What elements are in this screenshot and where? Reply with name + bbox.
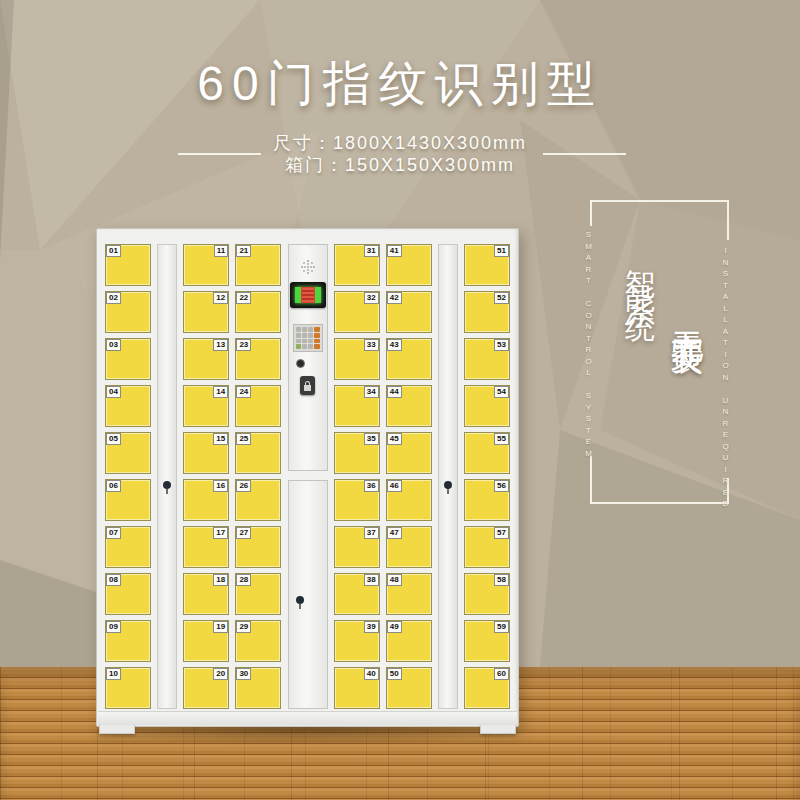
product-banner: 60门指纹识别型 尺寸：1800X1430X300mm 箱门：150X150X3… — [0, 0, 800, 800]
door-number: 17 — [214, 528, 227, 538]
locker-door: 59 — [464, 620, 510, 662]
locker-door: 14 — [183, 385, 229, 427]
side-caption-cn-primary: 智能系统 — [619, 245, 660, 301]
door-number: 14 — [214, 387, 227, 397]
keypad-key — [308, 333, 313, 338]
keyhole-icon — [296, 596, 304, 604]
product-title: 60门指纹识别型 — [0, 52, 800, 116]
locker-door: 44 — [386, 385, 432, 427]
door-number: 37 — [365, 528, 378, 538]
frame-line-left-upper — [590, 200, 592, 226]
locker-door: 01 — [105, 244, 151, 286]
keyhole-icon — [163, 481, 171, 489]
door-number: 33 — [365, 340, 378, 350]
door-number: 50 — [388, 669, 401, 679]
door-number: 21 — [237, 246, 250, 256]
locker-door: 57 — [464, 526, 510, 568]
locker-door: 43 — [386, 338, 432, 380]
locker-door: 06 — [105, 479, 151, 521]
door-number: 43 — [388, 340, 401, 350]
frame-line-left-lower — [590, 456, 592, 504]
lock-handle-icon — [300, 376, 315, 395]
control-column — [288, 244, 328, 709]
locker-door: 09 — [105, 620, 151, 662]
door-number: 18 — [214, 575, 227, 585]
keyhole-icon — [444, 481, 452, 489]
locker-door: 03 — [105, 338, 151, 380]
door-number: 13 — [214, 340, 227, 350]
locker-door: 51 — [464, 244, 510, 286]
door-number: 27 — [237, 528, 250, 538]
door-number: 06 — [107, 481, 120, 491]
locker-columns: 01020304050607080910 1112131415161718192… — [105, 244, 510, 709]
frame-line-top — [590, 200, 729, 202]
door-number: 55 — [495, 434, 508, 444]
door-number: 44 — [388, 387, 401, 397]
spec-block: 尺寸：1800X1430X300mm 箱门：150X150X300mm — [0, 132, 800, 176]
cabinet-foot-left — [99, 725, 135, 734]
door-number: 40 — [365, 669, 378, 679]
locker-door: 08 — [105, 573, 151, 615]
door-number: 07 — [107, 528, 120, 538]
spec-divider-right — [543, 153, 626, 155]
locker-door: 26 — [235, 479, 281, 521]
locker-door: 13 — [183, 338, 229, 380]
door-column-4: 31323334353637383940 — [334, 244, 380, 709]
keypad-key — [314, 327, 319, 332]
locker-door: 16 — [183, 479, 229, 521]
frame-line-right-upper — [727, 200, 729, 240]
keypad-key — [302, 344, 307, 349]
door-number: 56 — [495, 481, 508, 491]
door-number: 25 — [237, 434, 250, 444]
locker-door: 55 — [464, 432, 510, 474]
locker-door: 02 — [105, 291, 151, 333]
door-number: 10 — [107, 669, 120, 679]
door-number: 32 — [365, 293, 378, 303]
keypad — [293, 324, 323, 352]
door-number: 49 — [388, 622, 401, 632]
keypad-key — [308, 339, 313, 344]
door-number: 02 — [107, 293, 120, 303]
locker-door: 40 — [334, 667, 380, 709]
locker-door: 18 — [183, 573, 229, 615]
locker-door: 12 — [183, 291, 229, 333]
locker-door: 17 — [183, 526, 229, 568]
locker-door: 23 — [235, 338, 281, 380]
side-caption-en-left: SMART CONTROL SYSTEM — [584, 230, 593, 460]
keypad-key — [302, 327, 307, 332]
locker-door: 60 — [464, 667, 510, 709]
locker-door: 54 — [464, 385, 510, 427]
door-number: 03 — [107, 340, 120, 350]
locker-door: 04 — [105, 385, 151, 427]
door-number: 15 — [214, 434, 227, 444]
door-number: 29 — [237, 622, 250, 632]
keypad-key — [314, 333, 319, 338]
door-number: 35 — [365, 434, 378, 444]
locker-door: 07 — [105, 526, 151, 568]
locker-door: 45 — [386, 432, 432, 474]
door-column-1: 01020304050607080910 — [105, 244, 151, 709]
keypad-key — [296, 327, 301, 332]
door-number: 04 — [107, 387, 120, 397]
locker-door: 39 — [334, 620, 380, 662]
side-lock-panel-right — [438, 244, 458, 709]
locker-door: 05 — [105, 432, 151, 474]
door-number: 53 — [495, 340, 508, 350]
door-number: 57 — [495, 528, 508, 538]
door-number: 42 — [388, 293, 401, 303]
door-number: 22 — [237, 293, 250, 303]
keypad-key — [296, 339, 301, 344]
locker-door: 56 — [464, 479, 510, 521]
locker-door: 36 — [334, 479, 380, 521]
door-number: 45 — [388, 434, 401, 444]
keypad-key — [314, 344, 319, 349]
smart-locker-cabinet: 01020304050607080910 1112131415161718192… — [96, 228, 519, 727]
cabinet-base — [98, 711, 517, 725]
spec-door-size: 箱门：150X150X300mm — [0, 154, 800, 176]
door-number: 19 — [214, 622, 227, 632]
door-number: 12 — [214, 293, 227, 303]
locker-door: 10 — [105, 667, 151, 709]
door-column-5: 41424344454647484950 — [386, 244, 432, 709]
locker-door: 11 — [183, 244, 229, 286]
locker-door: 53 — [464, 338, 510, 380]
locker-door: 27 — [235, 526, 281, 568]
door-number: 16 — [214, 481, 227, 491]
door-number: 39 — [365, 622, 378, 632]
door-number: 08 — [107, 575, 120, 585]
padlock-glyph — [304, 385, 311, 391]
side-lock-panel-left — [157, 244, 177, 709]
central-service-door — [288, 480, 328, 709]
door-number: 36 — [365, 481, 378, 491]
locker-door: 22 — [235, 291, 281, 333]
door-number: 30 — [237, 669, 250, 679]
locker-door: 33 — [334, 338, 380, 380]
side-caption-en-right: INSTALLATION UNREQUIRED — [721, 246, 730, 511]
locker-door: 31 — [334, 244, 380, 286]
locker-door: 28 — [235, 573, 281, 615]
locker-door: 38 — [334, 573, 380, 615]
fingerprint-graphic — [302, 288, 314, 302]
keypad-key — [308, 344, 313, 349]
door-number: 20 — [214, 669, 227, 679]
door-number: 09 — [107, 622, 120, 632]
locker-door: 21 — [235, 244, 281, 286]
locker-door: 46 — [386, 479, 432, 521]
door-number: 31 — [365, 246, 378, 256]
keypad-key — [296, 344, 301, 349]
door-column-3: 21222324252627282930 — [235, 244, 281, 709]
screen-glass — [295, 287, 321, 303]
locker-door: 52 — [464, 291, 510, 333]
speaker-icon — [307, 266, 309, 268]
keypad-key — [302, 333, 307, 338]
keypad-key — [314, 339, 319, 344]
door-number: 05 — [107, 434, 120, 444]
door-number: 38 — [365, 575, 378, 585]
door-number: 26 — [237, 481, 250, 491]
locker-door: 49 — [386, 620, 432, 662]
cabinet-foot-right — [480, 725, 516, 734]
locker-door: 58 — [464, 573, 510, 615]
door-number: 52 — [495, 293, 508, 303]
door-number: 01 — [107, 246, 120, 256]
door-column-2: 11121314151617181920 — [183, 244, 229, 709]
door-number: 34 — [365, 387, 378, 397]
camera-dot-icon — [296, 359, 305, 368]
locker-door: 41 — [386, 244, 432, 286]
keypad-key — [302, 339, 307, 344]
locker-door: 50 — [386, 667, 432, 709]
door-number: 24 — [237, 387, 250, 397]
control-panel — [288, 244, 328, 471]
door-number: 54 — [495, 387, 508, 397]
locker-door: 42 — [386, 291, 432, 333]
locker-door: 19 — [183, 620, 229, 662]
door-number: 51 — [495, 246, 508, 256]
locker-door: 35 — [334, 432, 380, 474]
door-number: 11 — [215, 246, 227, 256]
door-number: 41 — [388, 246, 401, 256]
door-column-6: 51525354555657585960 — [464, 244, 510, 709]
locker-door: 20 — [183, 667, 229, 709]
locker-door: 29 — [235, 620, 281, 662]
locker-door: 15 — [183, 432, 229, 474]
locker-door: 24 — [235, 385, 281, 427]
door-number: 60 — [495, 669, 508, 679]
door-number: 59 — [495, 622, 508, 632]
side-caption-cn-secondary: 无需安装 — [664, 306, 709, 318]
locker-door: 47 — [386, 526, 432, 568]
locker-door: 25 — [235, 432, 281, 474]
door-number: 28 — [237, 575, 250, 585]
door-number: 23 — [237, 340, 250, 350]
locker-door: 34 — [334, 385, 380, 427]
locker-door: 30 — [235, 667, 281, 709]
locker-door: 32 — [334, 291, 380, 333]
door-number: 46 — [388, 481, 401, 491]
door-number: 48 — [388, 575, 401, 585]
frame-line-bottom — [590, 502, 729, 504]
keypad-key — [296, 333, 301, 338]
locker-door: 48 — [386, 573, 432, 615]
fingerprint-screen — [290, 282, 326, 308]
locker-door: 37 — [334, 526, 380, 568]
spec-divider-left — [178, 153, 261, 155]
door-number: 47 — [388, 528, 401, 538]
spec-dimensions: 尺寸：1800X1430X300mm — [0, 132, 800, 154]
door-number: 58 — [495, 575, 508, 585]
keypad-key — [308, 327, 313, 332]
